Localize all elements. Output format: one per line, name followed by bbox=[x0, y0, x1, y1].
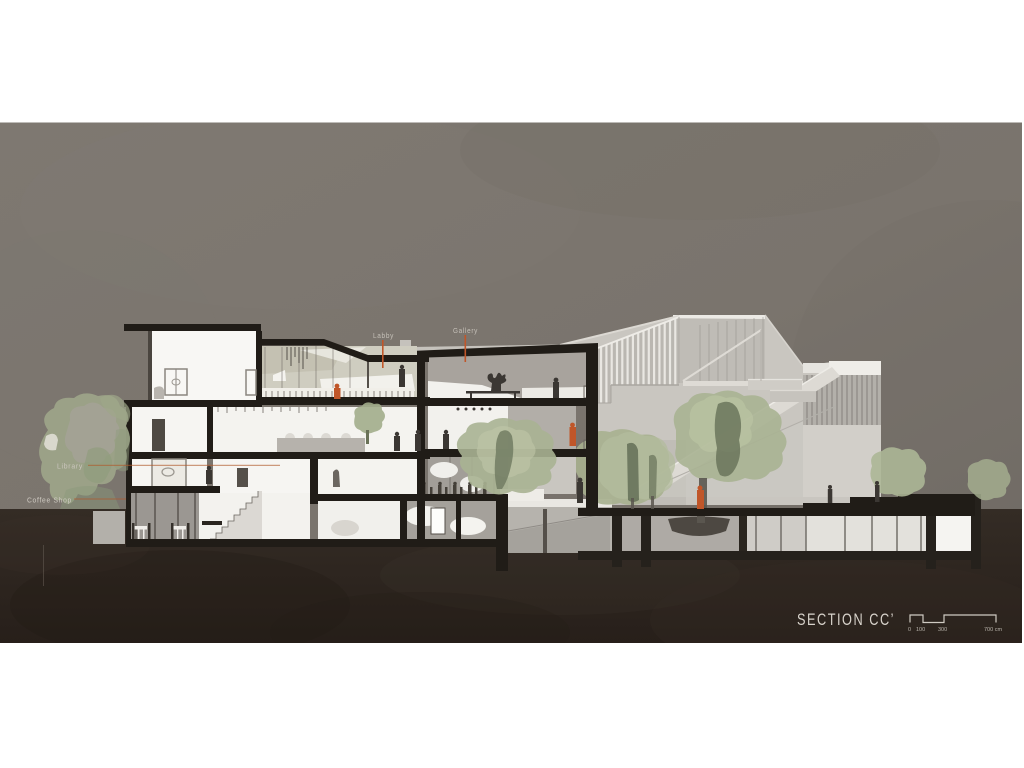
svg-text:Gallery: Gallery bbox=[453, 326, 478, 335]
svg-text:100: 100 bbox=[916, 627, 925, 633]
svg-text:700 cm: 700 cm bbox=[984, 627, 1002, 633]
svg-text:Coffee Shop: Coffee Shop bbox=[27, 496, 72, 505]
svg-text:SECTION CC’: SECTION CC’ bbox=[797, 610, 895, 629]
svg-text:300: 300 bbox=[938, 627, 947, 633]
svg-text:Library: Library bbox=[57, 462, 83, 471]
svg-text:0: 0 bbox=[908, 627, 911, 633]
svg-text:Labby: Labby bbox=[373, 331, 394, 340]
